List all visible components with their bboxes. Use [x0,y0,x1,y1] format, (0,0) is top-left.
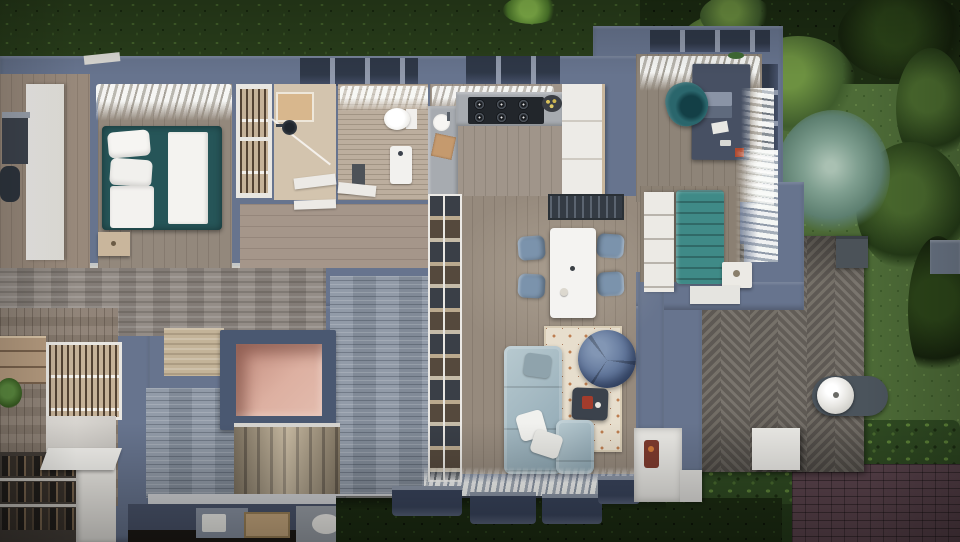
shoe-shelf-row [2,482,76,502]
deck-step-white [752,428,800,470]
coffee-table-red-item [582,396,593,409]
tufted-bench [676,190,724,284]
dining-chair [517,273,545,298]
burner [518,112,529,123]
window-slot [300,58,418,86]
phone [720,140,731,146]
table-decor [560,288,568,296]
shoe-shelf-row [2,508,76,530]
shower-head [282,120,297,135]
sofa-pillow-gray [523,352,553,379]
nook-bookshelf [644,192,674,292]
desk-plant [728,52,744,59]
burner [518,99,529,110]
grill-vent-dot [833,392,839,398]
shelf-edge [0,478,78,481]
floorplan-render [0,0,960,542]
window-slot-office [650,30,770,52]
wood-tabletop [244,512,290,538]
burner [496,99,507,110]
dining-chair [596,271,624,296]
closet-bay [240,141,268,193]
window-bay [542,494,602,524]
nightstand-knob [111,241,116,246]
stove-glow [648,446,654,452]
pendant-dot [570,266,575,271]
left-room-desk-dark [2,118,28,164]
shelf-center-rail [443,196,445,480]
burner [474,99,485,110]
side-table-item [733,270,740,277]
dining-chair [517,235,546,261]
nook-curtain-right [734,150,778,262]
window-slot [466,56,560,84]
bed-pillow [109,158,153,188]
wardrobe-clothes [46,342,122,420]
shelf-edge [0,504,78,507]
kitchen-cabinets-right [562,84,605,198]
hallway-floor [240,204,430,268]
planter-box [836,236,868,268]
dining-chair [596,233,625,259]
bean-bag [578,330,636,388]
left-room-chair [0,166,20,202]
stove-unit [644,440,659,468]
bed-runner [168,132,208,224]
window-bay [392,486,462,516]
bed-duvet [110,186,154,228]
hall-door [294,199,336,209]
window-bay [470,492,536,524]
deck-step-white-small [680,470,702,502]
ac-unit [930,240,960,274]
fruit-bowl [542,95,562,112]
blue-stone-slab [330,276,428,496]
burner [474,112,485,123]
sink-faucet [447,112,450,121]
left-room-wardrobe [26,84,64,260]
cabinet-lid [40,448,122,470]
wood-drawers [0,336,46,384]
closet-unit [236,84,272,198]
closet-bay [240,89,268,137]
white-fixture [202,514,226,532]
tan-stone-patch [164,328,224,376]
sink-faucet [398,151,403,156]
toilet-bowl [384,108,410,130]
shower-vanity [276,92,314,122]
nook-door-white [690,286,740,304]
brick-driveway [792,464,960,542]
burner [496,112,507,123]
bed-pillow [107,129,151,159]
coffee-table-white-dot [595,402,601,408]
bedroom-curtains [96,84,232,122]
open-shelving-divider [428,194,462,482]
gas-cooktop [468,97,544,124]
dining-table [550,228,596,318]
skylight-panel [548,194,624,220]
stair-void-opening [236,344,322,416]
staircase [234,427,340,498]
